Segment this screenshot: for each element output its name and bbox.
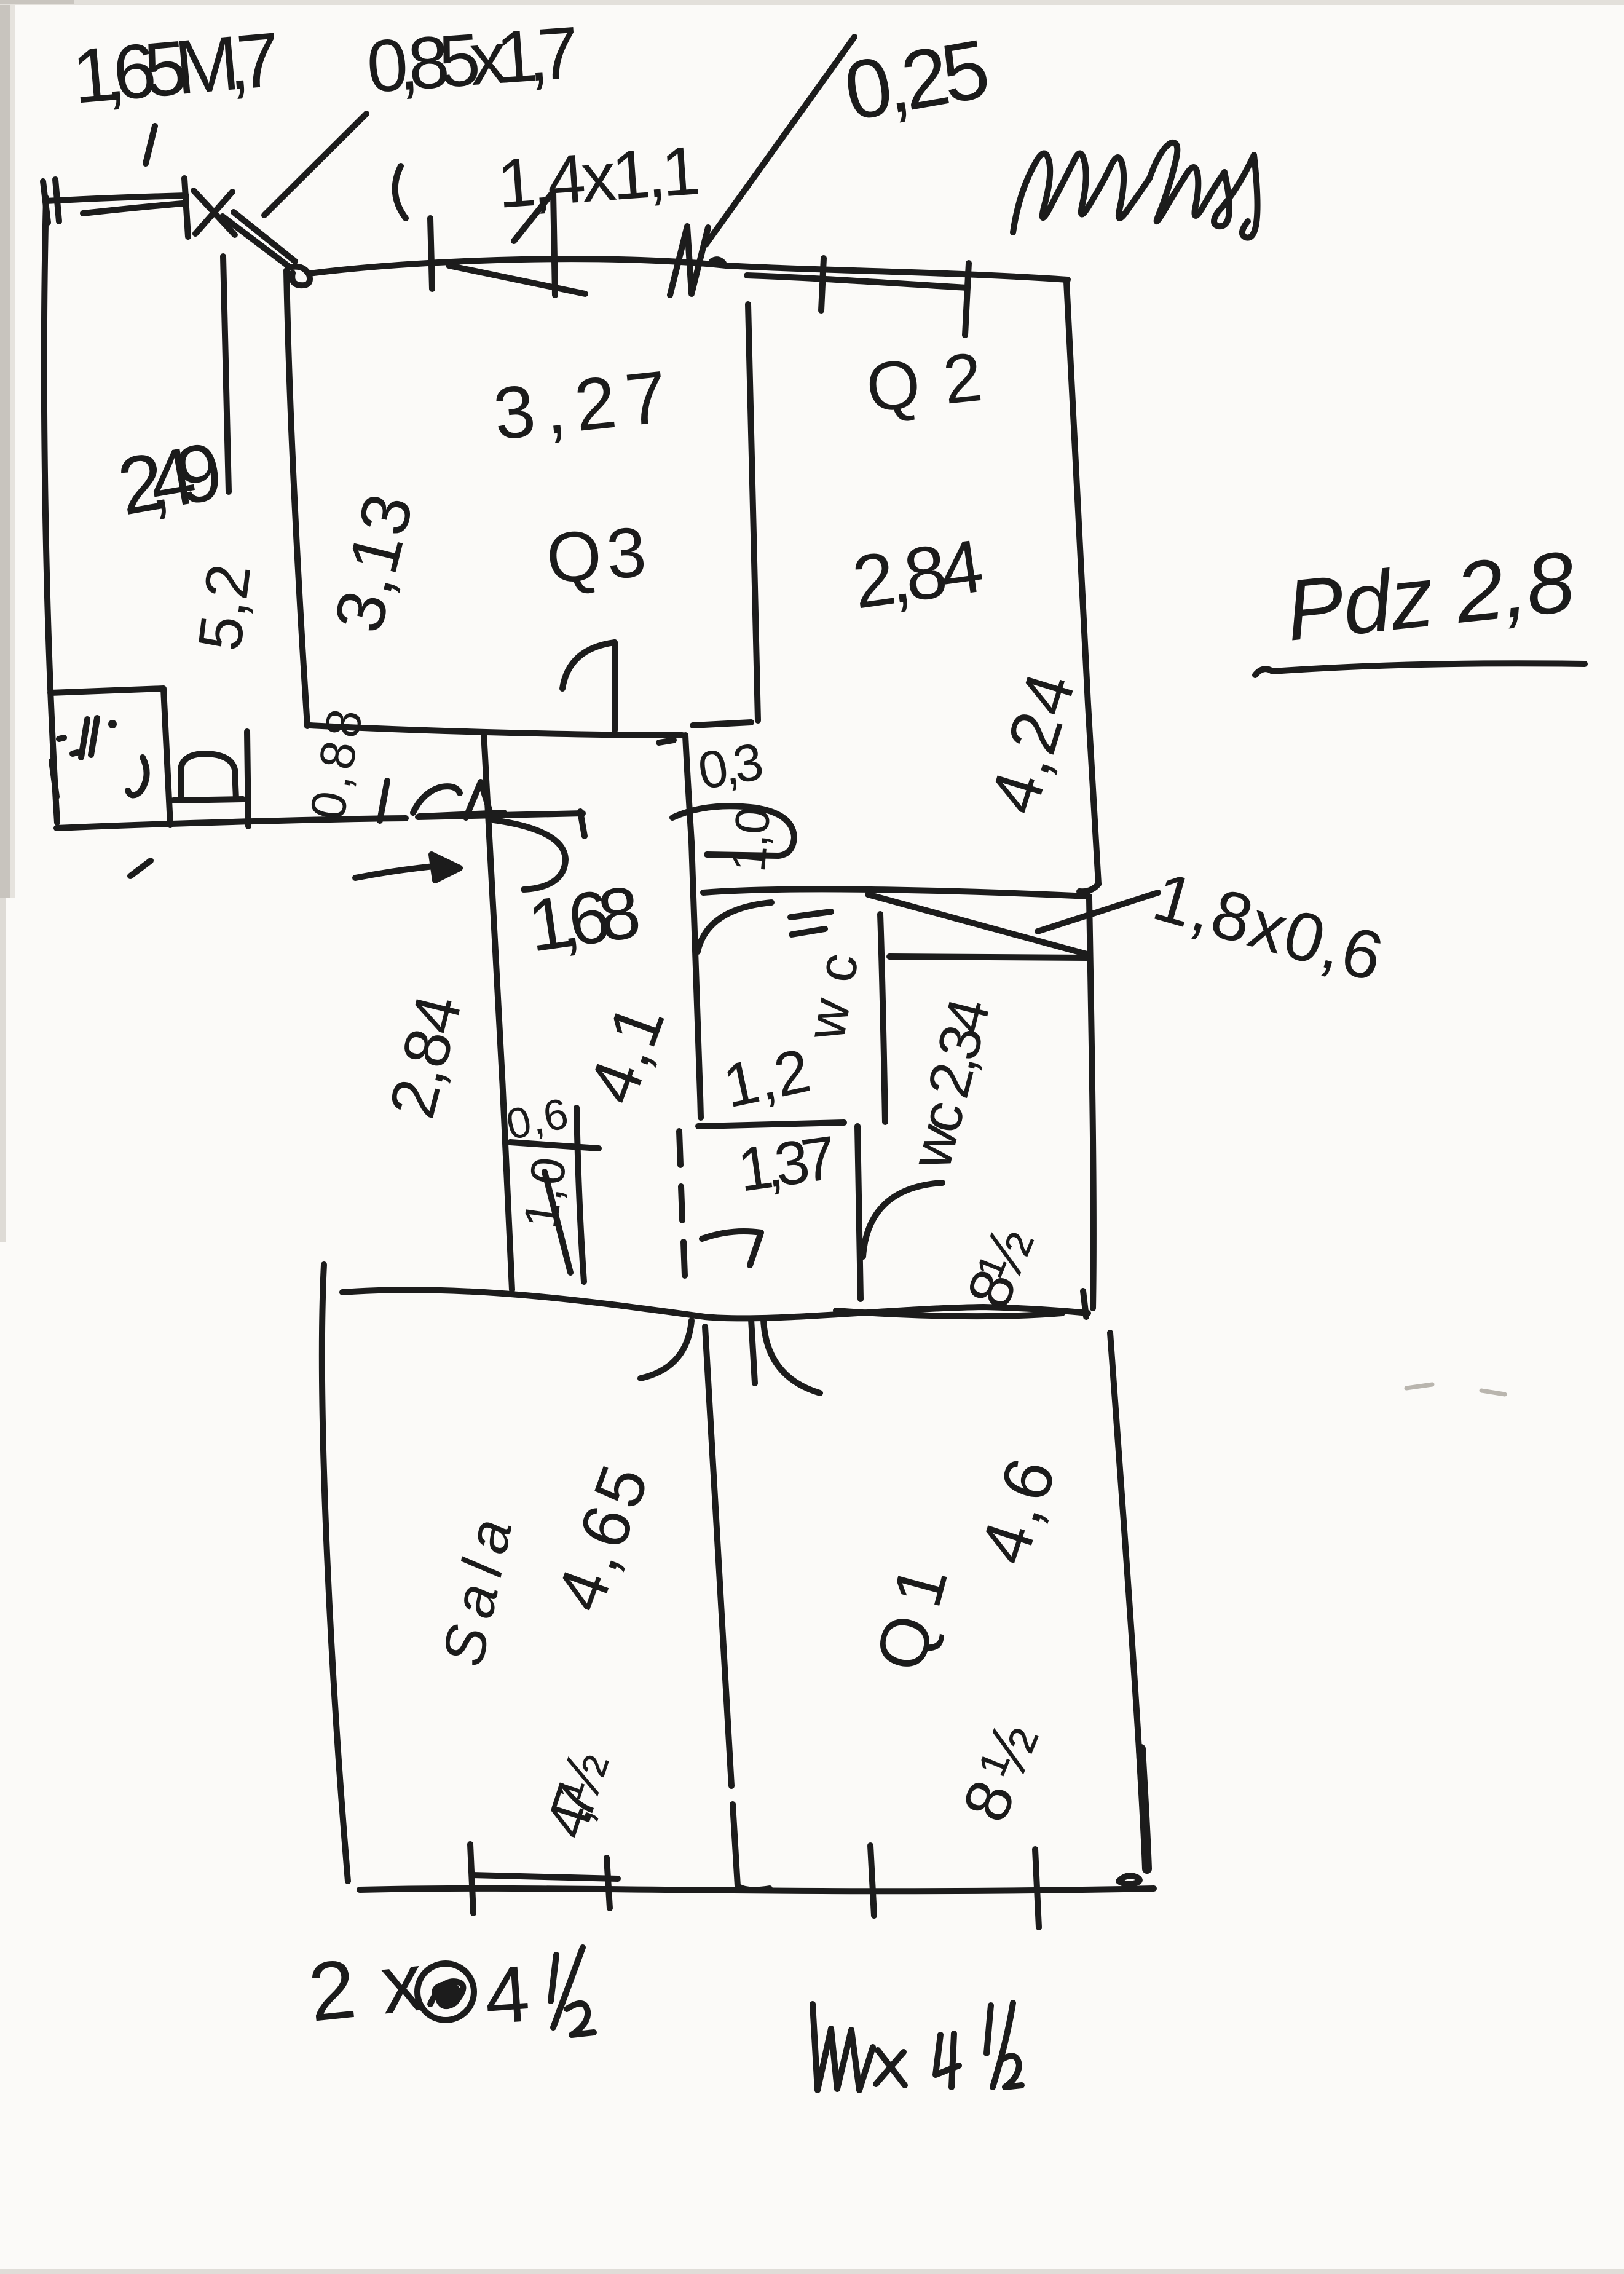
svg-text:4: 4 [482,1948,532,2041]
svg-text:5,2: 5,2 [185,561,264,655]
svg-text:Q3: Q3 [544,513,649,598]
svg-text:1,68: 1,68 [523,871,645,968]
svg-text:1,37: 1,37 [733,1123,840,1205]
svg-text:0,3: 0,3 [694,732,768,801]
svg-text:1,4x1,1: 1,4x1,1 [495,132,703,223]
svg-text:1,65M,7: 1,65M,7 [69,17,283,120]
svg-text:1,0: 1,0 [513,1154,577,1231]
svg-text:1,0: 1,0 [721,805,781,874]
svg-text:0,85x1,7: 0,85x1,7 [364,11,581,108]
svg-text:2,49: 2,49 [111,425,229,532]
